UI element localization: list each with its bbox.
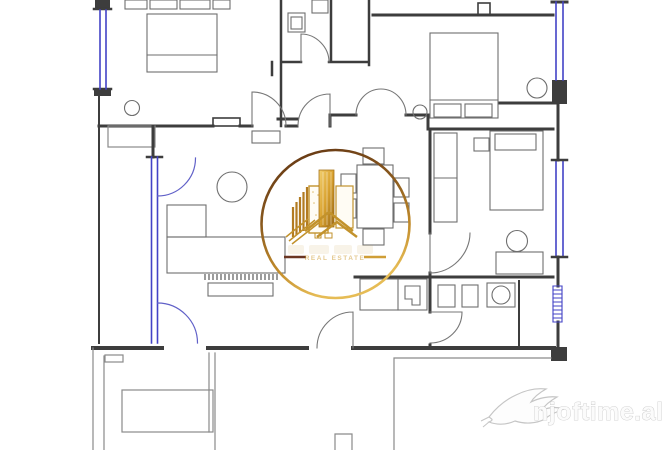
floor-plan-image: REAL ESTATE njoftime.al — [0, 0, 670, 450]
wc-fixtures — [288, 0, 328, 32]
center-logo-watermark: REAL ESTATE — [262, 150, 410, 298]
window-bedroomA-west — [100, 10, 106, 89]
window-caps-east — [552, 160, 567, 257]
hall-closet — [252, 131, 280, 143]
sofa-chaise — [167, 205, 206, 237]
logo-wordmark-faint — [288, 245, 373, 254]
door-entrance — [317, 312, 353, 348]
sink-unit — [487, 283, 515, 307]
bed-single — [490, 131, 543, 210]
logo-subtitle: REAL ESTATE — [305, 255, 366, 262]
door-arc-balcony-bottom — [158, 303, 198, 343]
window-caps-west — [94, 9, 111, 89]
sofa-fringe — [205, 275, 277, 280]
door-bedroomD — [430, 233, 470, 273]
nightstand — [474, 138, 489, 151]
terrace-west-lines — [93, 348, 104, 450]
window-living-west — [152, 157, 158, 343]
walls-wc — [272, 0, 369, 126]
door-bedroomC — [356, 89, 406, 115]
window-bedroomC-east — [556, 2, 563, 80]
wall-chimney-bump — [478, 3, 490, 15]
cistern — [312, 0, 328, 13]
site-watermark: njoftime.al — [481, 389, 664, 427]
wall-block-east-1 — [552, 80, 567, 104]
window-roomE-hatched — [553, 286, 562, 322]
bed-double-2 — [430, 33, 498, 118]
wall-block-top-left — [95, 0, 110, 9]
roomF-fixtures — [360, 279, 427, 310]
wall-bump — [213, 118, 240, 126]
pillow — [495, 134, 536, 150]
desk-chair — [507, 231, 528, 252]
wall-pillar-west — [94, 89, 111, 96]
terrace-outline — [93, 348, 551, 450]
coffee-table — [208, 283, 273, 296]
terrace-step — [335, 434, 352, 450]
bedroomD-furniture — [434, 131, 543, 274]
bed-double — [147, 14, 217, 72]
bedroomC-furniture — [413, 33, 547, 119]
wall-hall-jog — [330, 115, 428, 129]
doors — [252, 34, 470, 348]
door-wc — [301, 34, 329, 62]
wall-niche — [108, 126, 155, 147]
bedroomA-furniture — [125, 0, 231, 116]
dining-table — [357, 165, 393, 228]
terrace-mid-lines — [209, 353, 215, 450]
stool — [125, 101, 140, 116]
desk — [496, 252, 543, 274]
floor-plan-svg: REAL ESTATE njoftime.al — [0, 0, 670, 450]
toilet — [405, 286, 420, 305]
balcony-doors — [158, 158, 198, 343]
window-bedroomD-east — [556, 160, 563, 257]
plant-2 — [413, 105, 427, 119]
wall-east — [500, 103, 558, 350]
site-watermark-text: njoftime.al — [533, 398, 664, 426]
door-roomE — [430, 312, 462, 343]
round-table — [217, 172, 247, 202]
door-arc-balcony-top — [158, 158, 196, 196]
furniture — [125, 0, 548, 310]
living-furniture — [167, 148, 409, 296]
terrace-stairs — [122, 390, 213, 432]
roomE-fixtures — [438, 283, 515, 307]
wall-bedroomA-bottom — [99, 119, 297, 126]
door-hall — [298, 94, 330, 126]
gold-buildings-logo-icon — [286, 170, 357, 244]
plant — [527, 78, 547, 98]
